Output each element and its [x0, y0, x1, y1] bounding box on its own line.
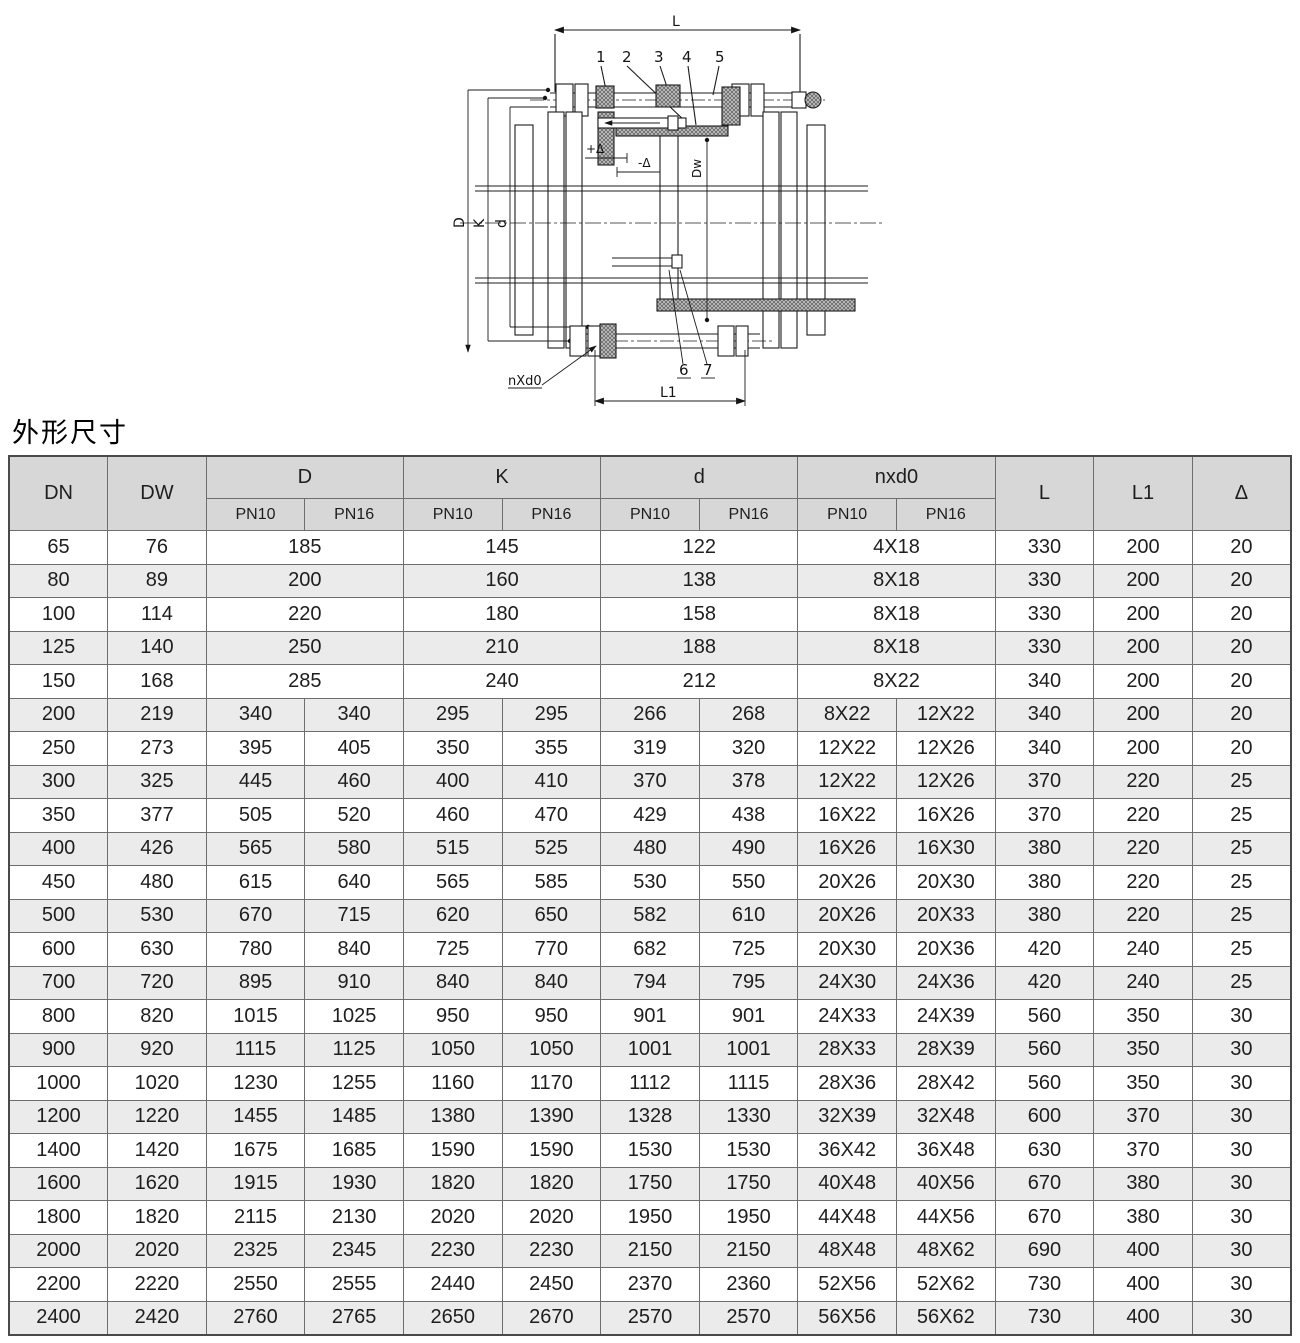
table-cell: 400 — [403, 765, 502, 799]
table-cell: 44X48 — [798, 1201, 897, 1235]
table-cell: 28X42 — [896, 1067, 995, 1101]
table-cell: 600 — [9, 933, 108, 967]
subheader-pn16: PN16 — [502, 499, 601, 531]
table-row: 25027339540535035531932012X2212X26340200… — [9, 732, 1291, 766]
col-header-nxd0-group: nxd0 — [798, 456, 995, 499]
table-cell: 690 — [995, 1234, 1094, 1268]
subheader-pn10: PN10 — [601, 499, 700, 531]
table-cell: 1485 — [305, 1100, 404, 1134]
table-cell: 380 — [1094, 1201, 1193, 1235]
table-cell: 188 — [601, 631, 798, 665]
table-cell: 480 — [601, 832, 700, 866]
table-cell: 426 — [108, 832, 207, 866]
subheader-pn16: PN16 — [896, 499, 995, 531]
table-cell: 1750 — [699, 1167, 798, 1201]
table-cell: 1820 — [108, 1201, 207, 1235]
table-cell: 460 — [305, 765, 404, 799]
table-cell: 370 — [995, 765, 1094, 799]
table-cell: 12X22 — [798, 765, 897, 799]
table-cell: 730 — [995, 1301, 1094, 1335]
table-cell: 1930 — [305, 1167, 404, 1201]
table-cell: 1328 — [601, 1100, 700, 1134]
table-cell: 32X39 — [798, 1100, 897, 1134]
table-cell: 650 — [502, 899, 601, 933]
table-cell: 370 — [995, 799, 1094, 833]
table-cell: 380 — [995, 899, 1094, 933]
table-cell: 2570 — [699, 1301, 798, 1335]
col-header-dn: DN — [9, 456, 108, 531]
table-cell: 268 — [699, 698, 798, 732]
table-cell: 840 — [403, 966, 502, 1000]
col-header-l: L — [995, 456, 1094, 531]
table-cell: 730 — [995, 1268, 1094, 1302]
table-cell: 920 — [108, 1033, 207, 1067]
dimension-table: DN DW D K d nxd0 L L1 Δ PN10 PN16 PN10 P… — [8, 455, 1292, 1336]
table-cell: 30 — [1192, 1301, 1291, 1335]
table-cell: 250 — [9, 732, 108, 766]
table-cell: 1620 — [108, 1167, 207, 1201]
table-cell: 30 — [1192, 1033, 1291, 1067]
table-cell: 48X62 — [896, 1234, 995, 1268]
table-cell: 400 — [1094, 1268, 1193, 1302]
table-cell: 1112 — [601, 1067, 700, 1101]
table-cell: 28X39 — [896, 1033, 995, 1067]
table-cell: 200 — [206, 564, 403, 598]
table-cell: 580 — [305, 832, 404, 866]
table-cell: 340 — [995, 665, 1094, 699]
table-cell: 1001 — [601, 1033, 700, 1067]
table-cell: 560 — [995, 1000, 1094, 1034]
table-cell: 1170 — [502, 1067, 601, 1101]
table-cell: 490 — [699, 832, 798, 866]
table-cell: 20 — [1192, 598, 1291, 632]
table-cell: 1125 — [305, 1033, 404, 1067]
table-cell: 25 — [1192, 899, 1291, 933]
table-cell: 725 — [403, 933, 502, 967]
table-cell: 219 — [108, 698, 207, 732]
table-cell: 24X30 — [798, 966, 897, 1000]
dim-label-l: L — [672, 14, 680, 30]
table-cell: 2550 — [206, 1268, 305, 1302]
table-row: 1001142201801588X1833020020 — [9, 598, 1291, 632]
table-cell: 350 — [1094, 1000, 1193, 1034]
table-cell: 620 — [403, 899, 502, 933]
table-cell: 910 — [305, 966, 404, 1000]
table-cell: 715 — [305, 899, 404, 933]
table-cell: 220 — [1094, 765, 1193, 799]
table-cell: 200 — [1094, 732, 1193, 766]
table-cell: 901 — [601, 1000, 700, 1034]
table-cell: 30 — [1192, 1201, 1291, 1235]
technical-drawing: L 1 2 3 4 5 +Δ -Δ Dw D K d 6 7 nXd0 L1 — [420, 0, 890, 445]
table-cell: 2115 — [206, 1201, 305, 1235]
table-cell: 1750 — [601, 1167, 700, 1201]
table-cell: 325 — [108, 765, 207, 799]
table-cell: 30 — [1192, 1100, 1291, 1134]
table-cell: 470 — [502, 799, 601, 833]
part-label-1: 1 — [596, 48, 606, 66]
table-cell: 640 — [305, 866, 404, 900]
table-cell: 429 — [601, 799, 700, 833]
table-cell: 24X33 — [798, 1000, 897, 1034]
table-cell: 400 — [1094, 1234, 1193, 1268]
table-cell: 380 — [1094, 1167, 1193, 1201]
table-cell: 1390 — [502, 1100, 601, 1134]
table-cell: 158 — [601, 598, 798, 632]
dimension-table-header: DN DW D K d nxd0 L L1 Δ PN10 PN16 PN10 P… — [9, 456, 1291, 531]
table-cell: 295 — [403, 698, 502, 732]
table-cell: 1400 — [9, 1134, 108, 1168]
table-cell: 16X26 — [798, 832, 897, 866]
dim-label-dw: Dw — [690, 159, 704, 178]
table-row: 1000102012301255116011701112111528X3628X… — [9, 1067, 1291, 1101]
table-cell: 530 — [108, 899, 207, 933]
table-cell: 285 — [206, 665, 403, 699]
table-cell: 370 — [1094, 1100, 1193, 1134]
table-cell: 525 — [502, 832, 601, 866]
col-header-d-group: D — [206, 456, 403, 499]
table-cell: 100 — [9, 598, 108, 632]
table-row: 70072089591084084079479524X3024X36420240… — [9, 966, 1291, 1000]
table-cell: 400 — [9, 832, 108, 866]
table-cell: 2345 — [305, 1234, 404, 1268]
table-cell: 1000 — [9, 1067, 108, 1101]
table-cell: 52X56 — [798, 1268, 897, 1302]
table-cell: 1220 — [108, 1100, 207, 1134]
table-cell: 1600 — [9, 1167, 108, 1201]
table-cell: 1820 — [502, 1167, 601, 1201]
table-cell: 20 — [1192, 698, 1291, 732]
table-cell: 30 — [1192, 1000, 1291, 1034]
table-cell: 610 — [699, 899, 798, 933]
table-cell: 700 — [9, 966, 108, 1000]
dim-label-delta-minus: -Δ — [638, 156, 651, 170]
table-cell: 12X26 — [896, 732, 995, 766]
table-cell: 2650 — [403, 1301, 502, 1335]
table-cell: 2020 — [502, 1201, 601, 1235]
table-cell: 2360 — [699, 1268, 798, 1302]
table-cell: 795 — [699, 966, 798, 1000]
catalog-page: L 1 2 3 4 5 +Δ -Δ Dw D K d 6 7 nXd0 L1 外… — [0, 0, 1300, 1343]
table-cell: 350 — [403, 732, 502, 766]
table-cell: 1685 — [305, 1134, 404, 1168]
table-cell: 2760 — [206, 1301, 305, 1335]
table-cell: 20 — [1192, 564, 1291, 598]
table-cell: 378 — [699, 765, 798, 799]
table-cell: 122 — [601, 531, 798, 565]
table-cell: 630 — [995, 1134, 1094, 1168]
table-cell: 220 — [1094, 832, 1193, 866]
table-cell: 820 — [108, 1000, 207, 1034]
table-cell: 65 — [9, 531, 108, 565]
table-cell: 780 — [206, 933, 305, 967]
dim-label-d-inner: d — [494, 219, 510, 228]
table-cell: 20X26 — [798, 899, 897, 933]
joint-cross-section — [460, 30, 882, 406]
table-cell: 405 — [305, 732, 404, 766]
table-cell: 2555 — [305, 1268, 404, 1302]
table-cell: 20 — [1192, 631, 1291, 665]
table-cell: 76 — [108, 531, 207, 565]
table-row: 30032544546040041037037812X2212X26370220… — [9, 765, 1291, 799]
table-cell: 1590 — [403, 1134, 502, 1168]
table-cell: 52X62 — [896, 1268, 995, 1302]
table-cell: 2325 — [206, 1234, 305, 1268]
table-cell: 8X22 — [798, 665, 995, 699]
part-label-5: 5 — [715, 48, 725, 66]
table-cell: 20 — [1192, 531, 1291, 565]
table-cell: 720 — [108, 966, 207, 1000]
table-cell: 1230 — [206, 1067, 305, 1101]
table-cell: 330 — [995, 631, 1094, 665]
table-cell: 377 — [108, 799, 207, 833]
table-cell: 1025 — [305, 1000, 404, 1034]
table-cell: 2570 — [601, 1301, 700, 1335]
table-cell: 4X18 — [798, 531, 995, 565]
table-cell: 1675 — [206, 1134, 305, 1168]
table-cell: 1590 — [502, 1134, 601, 1168]
part-label-3: 3 — [654, 48, 664, 66]
table-cell: 1530 — [601, 1134, 700, 1168]
table-cell: 550 — [699, 866, 798, 900]
col-header-k-group: K — [403, 456, 600, 499]
table-cell: 450 — [9, 866, 108, 900]
table-cell: 895 — [206, 966, 305, 1000]
section-title: 外形尺寸 — [12, 411, 128, 450]
table-cell: 12X22 — [896, 698, 995, 732]
table-cell: 20 — [1192, 665, 1291, 699]
table-cell: 630 — [108, 933, 207, 967]
table-row: 40042656558051552548049016X2616X30380220… — [9, 832, 1291, 866]
table-cell: 330 — [995, 564, 1094, 598]
table-cell: 25 — [1192, 966, 1291, 1000]
table-cell: 2150 — [601, 1234, 700, 1268]
table-cell: 273 — [108, 732, 207, 766]
table-cell: 16X30 — [896, 832, 995, 866]
col-header-delta: Δ — [1192, 456, 1291, 531]
col-header-l1: L1 — [1094, 456, 1193, 531]
table-cell: 1530 — [699, 1134, 798, 1168]
dim-label-nxd0: nXd0 — [508, 374, 542, 389]
table-cell: 380 — [995, 866, 1094, 900]
table-cell: 340 — [305, 698, 404, 732]
table-cell: 140 — [108, 631, 207, 665]
table-row: 45048061564056558553055020X2620X30380220… — [9, 866, 1291, 900]
table-cell: 565 — [403, 866, 502, 900]
table-cell: 355 — [502, 732, 601, 766]
table-cell: 56X56 — [798, 1301, 897, 1335]
table-row: 2000202023252345223022302150215048X4848X… — [9, 1234, 1291, 1268]
table-cell: 212 — [601, 665, 798, 699]
table-row: 50053067071562065058261020X2620X33380220… — [9, 899, 1291, 933]
table-cell: 370 — [1094, 1134, 1193, 1168]
table-cell: 220 — [1094, 866, 1193, 900]
table-cell: 200 — [1094, 564, 1193, 598]
table-cell: 28X33 — [798, 1033, 897, 1067]
table-cell: 1050 — [502, 1033, 601, 1067]
table-cell: 80 — [9, 564, 108, 598]
subheader-pn10: PN10 — [798, 499, 897, 531]
table-cell: 2220 — [108, 1268, 207, 1302]
table-cell: 200 — [1094, 598, 1193, 632]
table-cell: 20X33 — [896, 899, 995, 933]
table-cell: 1800 — [9, 1201, 108, 1235]
table-cell: 505 — [206, 799, 305, 833]
subheader-pn16: PN16 — [699, 499, 798, 531]
table-cell: 438 — [699, 799, 798, 833]
table-cell: 125 — [9, 631, 108, 665]
table-cell: 340 — [995, 698, 1094, 732]
table-cell: 36X42 — [798, 1134, 897, 1168]
table-cell: 900 — [9, 1033, 108, 1067]
table-cell: 585 — [502, 866, 601, 900]
table-cell: 800 — [9, 1000, 108, 1034]
table-row: 80892001601388X1833020020 — [9, 564, 1291, 598]
table-cell: 40X48 — [798, 1167, 897, 1201]
table-row: 1501682852402128X2234020020 — [9, 665, 1291, 699]
table-cell: 2670 — [502, 1301, 601, 1335]
table-cell: 520 — [305, 799, 404, 833]
table-cell: 1001 — [699, 1033, 798, 1067]
table-row: 60063078084072577068272520X3020X36420240… — [9, 933, 1291, 967]
table-cell: 340 — [206, 698, 305, 732]
table-cell: 200 — [1094, 531, 1193, 565]
table-cell: 840 — [502, 966, 601, 1000]
table-cell: 295 — [502, 698, 601, 732]
table-cell: 480 — [108, 866, 207, 900]
table-cell: 8X18 — [798, 564, 995, 598]
table-cell: 420 — [995, 966, 1094, 1000]
table-cell: 300 — [9, 765, 108, 799]
table-cell: 200 — [9, 698, 108, 732]
table-cell: 2450 — [502, 1268, 601, 1302]
table-cell: 1950 — [699, 1201, 798, 1235]
table-cell: 89 — [108, 564, 207, 598]
table-cell: 560 — [995, 1033, 1094, 1067]
table-cell: 560 — [995, 1067, 1094, 1101]
table-cell: 30 — [1192, 1268, 1291, 1302]
table-cell: 138 — [601, 564, 798, 598]
table-cell: 150 — [9, 665, 108, 699]
table-cell: 2230 — [403, 1234, 502, 1268]
table-cell: 1160 — [403, 1067, 502, 1101]
table-row: 1800182021152130202020201950195044X4844X… — [9, 1201, 1291, 1235]
table-cell: 240 — [1094, 933, 1193, 967]
table-cell: 600 — [995, 1100, 1094, 1134]
table-cell: 2370 — [601, 1268, 700, 1302]
table-cell: 950 — [502, 1000, 601, 1034]
table-cell: 670 — [995, 1167, 1094, 1201]
table-cell: 12X22 — [798, 732, 897, 766]
table-cell: 840 — [305, 933, 404, 967]
table-row: 1400142016751685159015901530153036X4236X… — [9, 1134, 1291, 1168]
table-cell: 460 — [403, 799, 502, 833]
table-cell: 1115 — [206, 1033, 305, 1067]
table-cell: 670 — [206, 899, 305, 933]
table-cell: 615 — [206, 866, 305, 900]
table-cell: 420 — [995, 933, 1094, 967]
table-cell: 210 — [403, 631, 600, 665]
table-cell: 1455 — [206, 1100, 305, 1134]
table-cell: 2765 — [305, 1301, 404, 1335]
table-cell: 400 — [1094, 1301, 1193, 1335]
table-cell: 20X30 — [896, 866, 995, 900]
table-cell: 56X62 — [896, 1301, 995, 1335]
table-cell: 24X36 — [896, 966, 995, 1000]
table-cell: 1420 — [108, 1134, 207, 1168]
dim-label-d-outer: D — [452, 217, 468, 228]
table-cell: 2420 — [108, 1301, 207, 1335]
table-cell: 2020 — [403, 1201, 502, 1235]
subheader-pn10: PN10 — [403, 499, 502, 531]
table-cell: 794 — [601, 966, 700, 1000]
table-cell: 515 — [403, 832, 502, 866]
table-row: 65761851451224X1833020020 — [9, 531, 1291, 565]
table-cell: 395 — [206, 732, 305, 766]
table-cell: 380 — [995, 832, 1094, 866]
table-cell: 1820 — [403, 1167, 502, 1201]
table-cell: 2000 — [9, 1234, 108, 1268]
table-cell: 240 — [403, 665, 600, 699]
table-cell: 25 — [1192, 832, 1291, 866]
table-cell: 2150 — [699, 1234, 798, 1268]
table-cell: 220 — [1094, 799, 1193, 833]
table-row: 2200222025502555244024502370236052X5652X… — [9, 1268, 1291, 1302]
table-cell: 114 — [108, 598, 207, 632]
table-cell: 20X30 — [798, 933, 897, 967]
table-cell: 725 — [699, 933, 798, 967]
table-row: 1200122014551485138013901328133032X3932X… — [9, 1100, 1291, 1134]
table-cell: 185 — [206, 531, 403, 565]
table-cell: 145 — [403, 531, 600, 565]
table-cell: 28X36 — [798, 1067, 897, 1101]
table-cell: 582 — [601, 899, 700, 933]
table-cell: 25 — [1192, 933, 1291, 967]
table-cell: 565 — [206, 832, 305, 866]
table-cell: 8X18 — [798, 631, 995, 665]
table-cell: 200 — [1094, 631, 1193, 665]
table-cell: 16X22 — [798, 799, 897, 833]
table-cell: 340 — [995, 732, 1094, 766]
table-cell: 1020 — [108, 1067, 207, 1101]
table-cell: 2400 — [9, 1301, 108, 1335]
table-row: 90092011151125105010501001100128X3328X39… — [9, 1033, 1291, 1067]
table-cell: 250 — [206, 631, 403, 665]
table-cell: 200 — [1094, 698, 1193, 732]
subheader-pn16: PN16 — [305, 499, 404, 531]
table-cell: 168 — [108, 665, 207, 699]
table-row: 2400242027602765265026702570257056X5656X… — [9, 1301, 1291, 1335]
table-cell: 240 — [1094, 966, 1193, 1000]
table-cell: 1200 — [9, 1100, 108, 1134]
table-cell: 160 — [403, 564, 600, 598]
table-cell: 30 — [1192, 1234, 1291, 1268]
table-cell: 220 — [206, 598, 403, 632]
table-cell: 8X22 — [798, 698, 897, 732]
table-cell: 445 — [206, 765, 305, 799]
table-cell: 1950 — [601, 1201, 700, 1235]
table-cell: 1050 — [403, 1033, 502, 1067]
table-cell: 2230 — [502, 1234, 601, 1268]
table-cell: 8X18 — [798, 598, 995, 632]
dim-label-l1: L1 — [660, 385, 677, 401]
table-cell: 20X36 — [896, 933, 995, 967]
part-label-7: 7 — [703, 361, 713, 379]
table-cell: 682 — [601, 933, 700, 967]
table-row: 8008201015102595095090190124X3324X395603… — [9, 1000, 1291, 1034]
table-cell: 12X26 — [896, 765, 995, 799]
table-cell: 30 — [1192, 1134, 1291, 1168]
